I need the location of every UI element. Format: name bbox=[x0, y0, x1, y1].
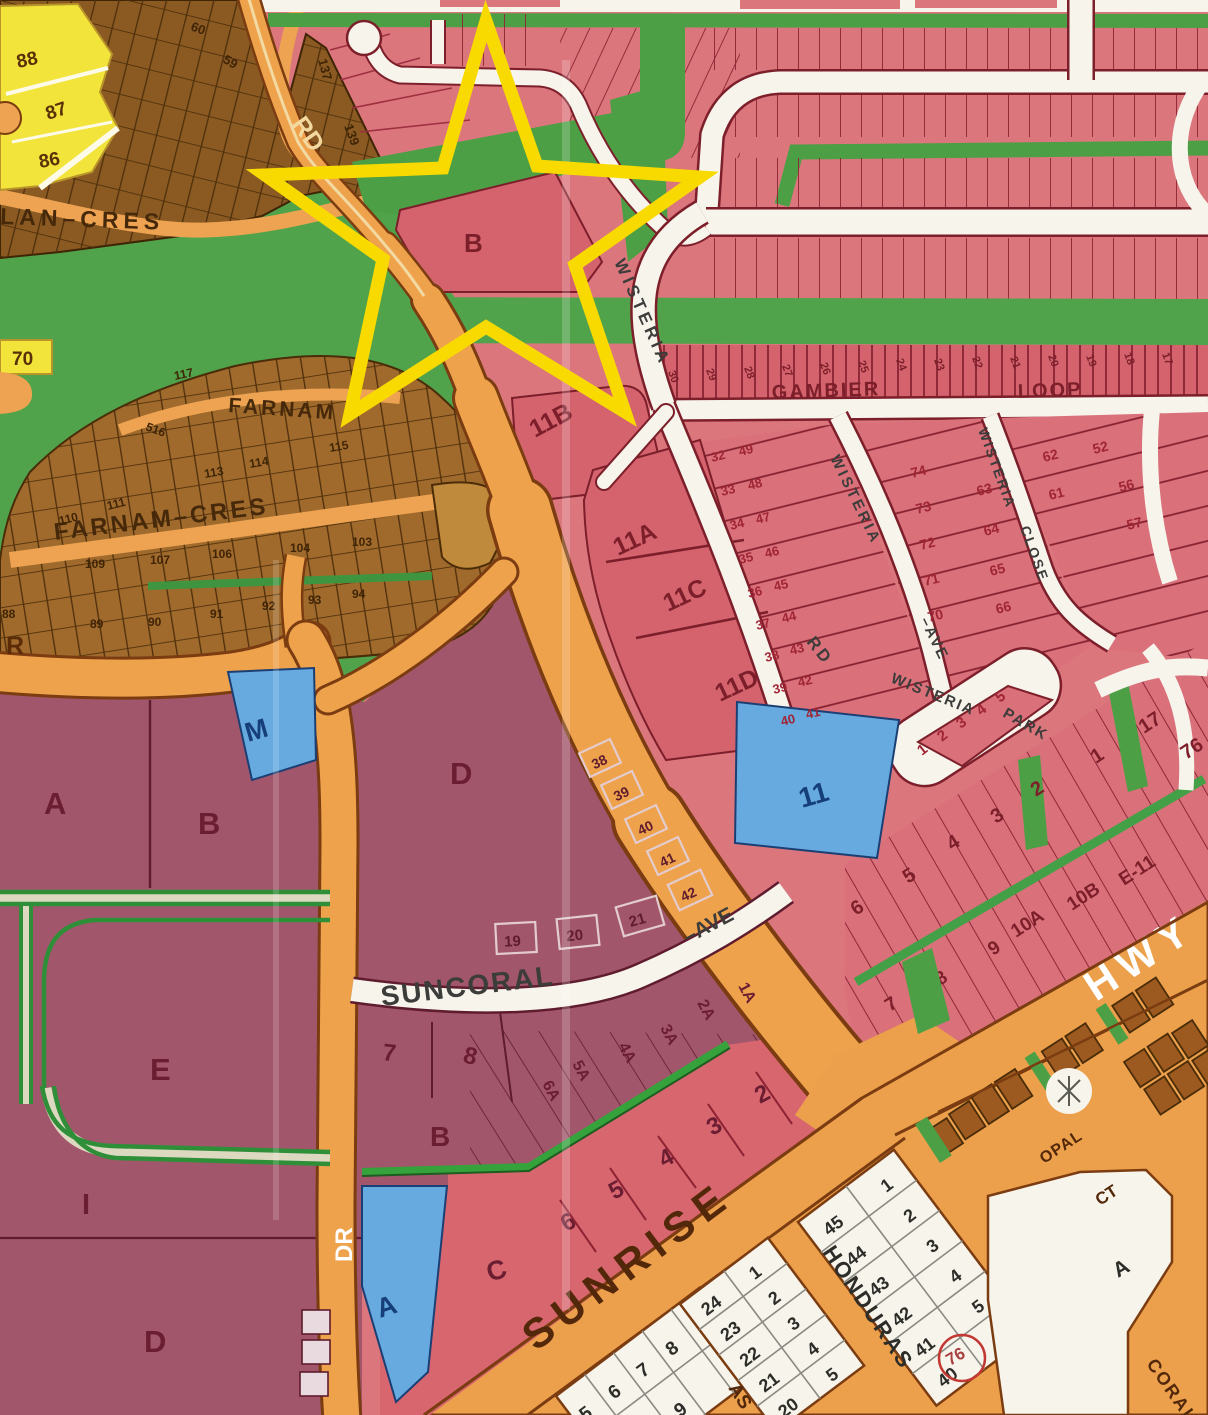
svg-text:E: E bbox=[150, 1052, 171, 1087]
svg-text:93: 93 bbox=[308, 593, 322, 607]
svg-text:D: D bbox=[450, 756, 472, 791]
svg-text:89: 89 bbox=[90, 617, 104, 631]
svg-text:LOOP: LOOP bbox=[1017, 379, 1082, 403]
svg-text:B: B bbox=[430, 1121, 450, 1152]
svg-text:R: R bbox=[6, 632, 24, 660]
svg-text:A: A bbox=[44, 786, 66, 821]
svg-text:86: 86 bbox=[37, 149, 61, 173]
svg-text:DR: DR bbox=[331, 1227, 358, 1262]
svg-text:B: B bbox=[464, 228, 483, 258]
svg-text:104: 104 bbox=[290, 541, 310, 555]
svg-text:94: 94 bbox=[352, 587, 366, 601]
svg-text:106: 106 bbox=[212, 547, 232, 561]
svg-text:I: I bbox=[82, 1189, 90, 1221]
svg-text:88: 88 bbox=[2, 607, 16, 621]
svg-text:B: B bbox=[198, 806, 220, 841]
svg-text:91: 91 bbox=[210, 607, 224, 621]
svg-text:103: 103 bbox=[352, 535, 372, 549]
svg-text:GAMBIER: GAMBIER bbox=[771, 378, 880, 404]
svg-text:D: D bbox=[144, 1324, 166, 1359]
svg-text:88: 88 bbox=[15, 48, 40, 73]
svg-text:107: 107 bbox=[150, 553, 170, 567]
svg-text:90: 90 bbox=[148, 615, 162, 629]
svg-text:19: 19 bbox=[504, 933, 522, 951]
svg-text:70: 70 bbox=[12, 349, 33, 370]
svg-text:7: 7 bbox=[381, 1039, 397, 1067]
svg-text:109: 109 bbox=[85, 557, 105, 571]
